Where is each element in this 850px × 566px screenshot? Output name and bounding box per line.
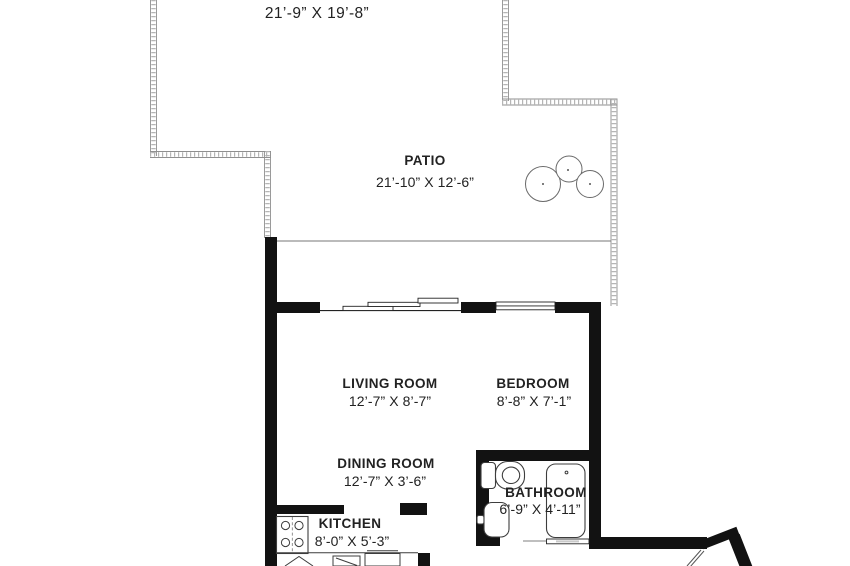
- bedroom-label: BEDROOM: [496, 376, 569, 391]
- dining-room-label: DINING ROOM: [337, 456, 434, 471]
- deck-edge-hatched-border: [150, 0, 618, 306]
- deck-dimension-label: 21’-9” X 19’-8”: [265, 5, 369, 23]
- bathroom-window: [547, 539, 590, 544]
- bedroom-dimension-label: 8’-8” X 7’-1”: [497, 393, 571, 409]
- patio-dimension-label: 21’-10” X 12’-6”: [376, 174, 474, 190]
- stove-fixture: [277, 517, 309, 554]
- patio-label: PATIO: [404, 153, 445, 168]
- shrub-plant: [526, 156, 604, 202]
- bathroom-label: BATHROOM: [505, 485, 587, 500]
- living-room-dimension-label: 12’-7” X 8’-7”: [349, 393, 431, 409]
- sliding-glass-door: [320, 298, 461, 310]
- bedroom-window: [496, 302, 555, 310]
- dining-room-dimension-label: 12’-7” X 3’-6”: [344, 473, 426, 489]
- entry-door: [687, 550, 704, 566]
- bathroom-dimension-label: 6’-9” X 4’-11”: [499, 501, 580, 517]
- kitchen-counter-fixtures: [277, 551, 418, 566]
- living-room-label: LIVING ROOM: [342, 376, 437, 391]
- kitchen-dimension-label: 8’-0” X 5’-3”: [315, 533, 389, 549]
- floor-plan: 21’-9” X 19’-8” PATIO 21’-10” X 12’-6” L…: [0, 0, 850, 566]
- kitchen-label: KITCHEN: [319, 516, 382, 531]
